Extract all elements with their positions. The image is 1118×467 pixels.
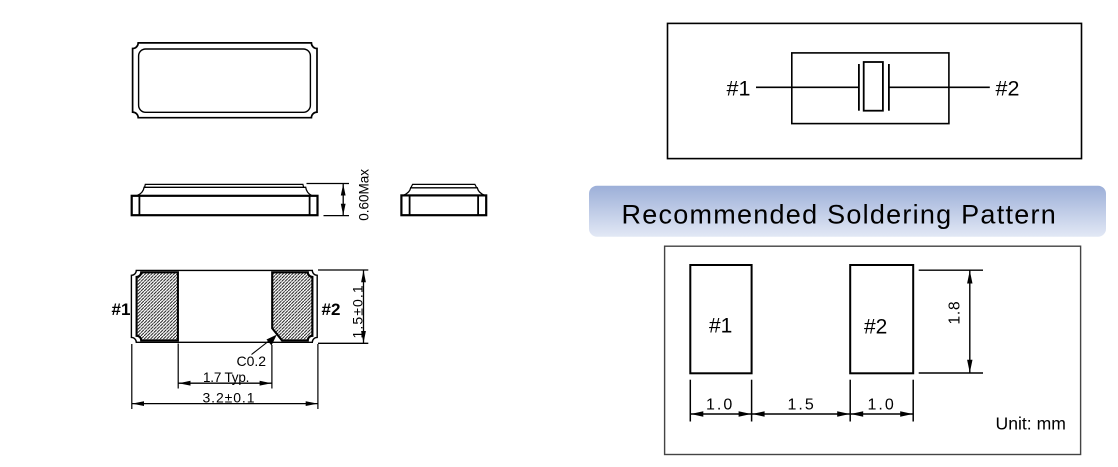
svg-text:Unit: mm: Unit: mm xyxy=(996,414,1066,434)
svg-text:1.8: 1.8 xyxy=(947,301,964,325)
svg-text:#2: #2 xyxy=(322,300,341,319)
svg-text:1.0: 1.0 xyxy=(868,397,896,414)
svg-text:#2: #2 xyxy=(864,316,887,339)
svg-text:1.5: 1.5 xyxy=(788,397,816,414)
svg-text:1.5±0.1: 1.5±0.1 xyxy=(349,284,365,338)
svg-text:3.2±0.1: 3.2±0.1 xyxy=(203,390,256,406)
svg-text:0.60Max: 0.60Max xyxy=(356,169,371,221)
svg-text:1.7 Typ.: 1.7 Typ. xyxy=(203,370,249,385)
svg-text:#1: #1 xyxy=(709,315,732,338)
svg-text:C0.2: C0.2 xyxy=(237,353,267,369)
svg-text:Recommended Soldering Pattern: Recommended Soldering Pattern xyxy=(622,199,1057,229)
svg-text:1.0: 1.0 xyxy=(706,397,734,414)
svg-text:#1: #1 xyxy=(727,77,751,101)
svg-text:#2: #2 xyxy=(996,77,1020,101)
svg-text:#1: #1 xyxy=(112,300,131,319)
